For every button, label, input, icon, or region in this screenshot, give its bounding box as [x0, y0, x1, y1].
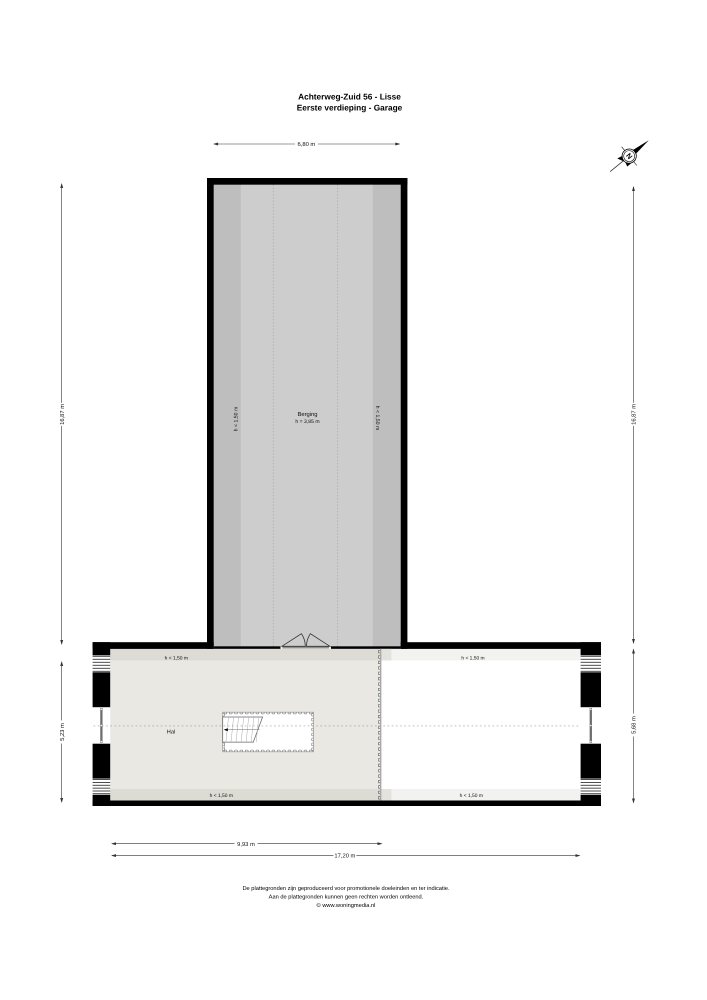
svg-text:© www.woningmedia.nl: © www.woningmedia.nl [317, 902, 376, 909]
svg-text:Eerste verdieping - Garage: Eerste verdieping - Garage [297, 102, 403, 112]
svg-text:h < 1,50 m: h < 1,50 m [460, 793, 483, 799]
svg-text:De plattegronden zijn geproduc: De plattegronden zijn geproduceerd voor … [242, 885, 450, 892]
svg-text:16,87 m: 16,87 m [631, 404, 638, 425]
svg-text:h < 1,50 m: h < 1,50 m [374, 406, 380, 431]
svg-text:17,20 m: 17,20 m [334, 853, 355, 860]
svg-text:Aan de plattegronden kunnen ge: Aan de plattegronden kunnen geen rechten… [269, 894, 424, 901]
svg-text:5,23 m: 5,23 m [59, 723, 66, 741]
svg-text:6,80 m: 6,80 m [298, 141, 316, 148]
svg-text:h = 3,85 m: h = 3,85 m [295, 419, 319, 425]
svg-text:h < 1,50 m: h < 1,50 m [461, 655, 484, 661]
svg-text:h < 1,50 m: h < 1,50 m [210, 793, 233, 799]
svg-text:h < 1,50 m: h < 1,50 m [165, 655, 188, 661]
svg-text:Berging: Berging [298, 411, 318, 418]
svg-text:9,93 m: 9,93 m [237, 841, 255, 848]
svg-text:Achterweg-Zuid 56 - Lisse: Achterweg-Zuid 56 - Lisse [298, 92, 401, 102]
svg-text:h < 1,50 m: h < 1,50 m [234, 407, 240, 432]
svg-text:16,87 m: 16,87 m [59, 404, 66, 425]
svg-text:Hal: Hal [167, 729, 175, 736]
svg-text:5,68 m: 5,68 m [631, 716, 638, 734]
